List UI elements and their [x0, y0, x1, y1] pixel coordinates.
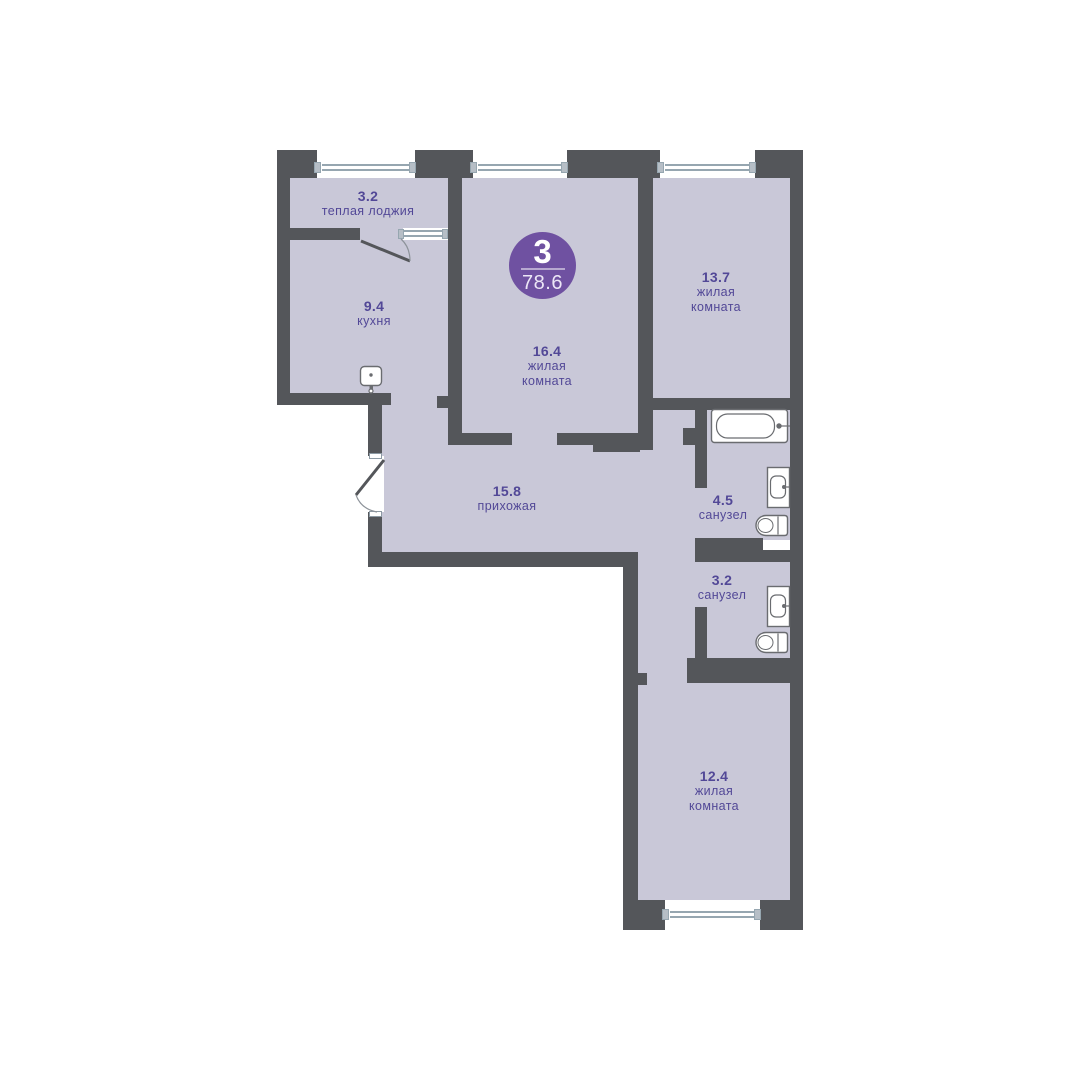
- wall-living-main-living-right: [638, 150, 653, 450]
- window-loggia-frame: [322, 164, 410, 171]
- wall-hallway-left-upper: [368, 405, 382, 458]
- badge-divider: [521, 268, 565, 270]
- wall-bathroom-divider-a: [695, 538, 763, 562]
- room-name: жилая: [522, 359, 572, 374]
- window-cap: [409, 162, 416, 173]
- room-name: комната: [691, 300, 741, 315]
- window-balcony-frame: [403, 230, 445, 237]
- room-label-hallway: 15.8 прихожая: [478, 483, 537, 514]
- window-cap: [442, 229, 448, 239]
- total-area: 78.6: [522, 272, 563, 294]
- wall-hallway-bottom: [368, 552, 638, 567]
- room-area: 3.2: [322, 188, 415, 204]
- window-living-bottom-frame: [670, 911, 754, 918]
- wall-stub-living-bottom-door: [638, 673, 647, 685]
- room-name: кухня: [357, 314, 391, 329]
- wall-kitchen-bottom: [277, 393, 391, 405]
- room-area: 16.4: [522, 343, 572, 359]
- wall-kitchen-living: [448, 150, 462, 445]
- room-name: комната: [522, 374, 572, 389]
- door-cap: [369, 511, 382, 517]
- room-label-bathroom-2: 3.2 санузел: [698, 572, 747, 603]
- wall-living-main-bottom-left: [448, 433, 512, 445]
- wall-bathroom-1-left: [695, 398, 707, 488]
- room-name: теплая лоджия: [322, 204, 415, 219]
- floor-plan: 3.2 теплая лоджия 9.4 кухня 16.4 жилая к…: [0, 0, 1080, 1080]
- wall-living-right-bottom: [653, 398, 790, 410]
- wall-left: [277, 150, 290, 405]
- window-cap: [657, 162, 664, 173]
- room-label-bathroom-1: 4.5 санузел: [699, 492, 748, 523]
- room-name: жилая: [691, 285, 741, 300]
- wall-step: [593, 445, 640, 452]
- room-area: 9.4: [357, 298, 391, 314]
- window-cap: [470, 162, 477, 173]
- window-living-main-frame: [478, 164, 561, 171]
- window-cap: [754, 909, 761, 920]
- room-area: 13.7: [691, 269, 741, 285]
- window-living-right-frame: [665, 164, 749, 171]
- room-area: 3.2: [698, 572, 747, 588]
- room-area: 4.5: [699, 492, 748, 508]
- room-label-living-main: 16.4 жилая комната: [522, 343, 572, 389]
- rooms-count: 3: [533, 237, 551, 267]
- room-name: жилая: [689, 784, 739, 799]
- window-cap: [314, 162, 321, 173]
- door-cap: [369, 453, 382, 459]
- room-name: санузел: [699, 508, 748, 523]
- window-cap: [398, 229, 404, 239]
- room-name: санузел: [698, 588, 747, 603]
- room-area: 15.8: [478, 483, 537, 499]
- room-label-living-right: 13.7 жилая комната: [691, 269, 741, 315]
- entrance-door-opening: [366, 456, 384, 512]
- wall-loggia-kitchen: [290, 228, 360, 240]
- room-name: комната: [689, 799, 739, 814]
- room-label-kitchen: 9.4 кухня: [357, 298, 391, 329]
- wall-bathroom-2-left: [695, 607, 707, 660]
- wall-bathroom-divider-b: [763, 550, 790, 562]
- room-label-living-bottom: 12.4 жилая комната: [689, 768, 739, 814]
- room-area: 12.4: [689, 768, 739, 784]
- window-cap: [561, 162, 568, 173]
- wall-bathroom-1-stub: [683, 428, 695, 445]
- room-name: прихожая: [478, 499, 537, 514]
- apartment-badge: 3 78.6: [509, 232, 576, 299]
- wall-bathroom-2-bottom: [687, 658, 790, 683]
- window-cap: [749, 162, 756, 173]
- room-label-loggia: 3.2 теплая лоджия: [322, 188, 415, 219]
- wall-corridor-left: [623, 552, 638, 930]
- window-cap: [662, 909, 669, 920]
- wall-right: [790, 150, 803, 930]
